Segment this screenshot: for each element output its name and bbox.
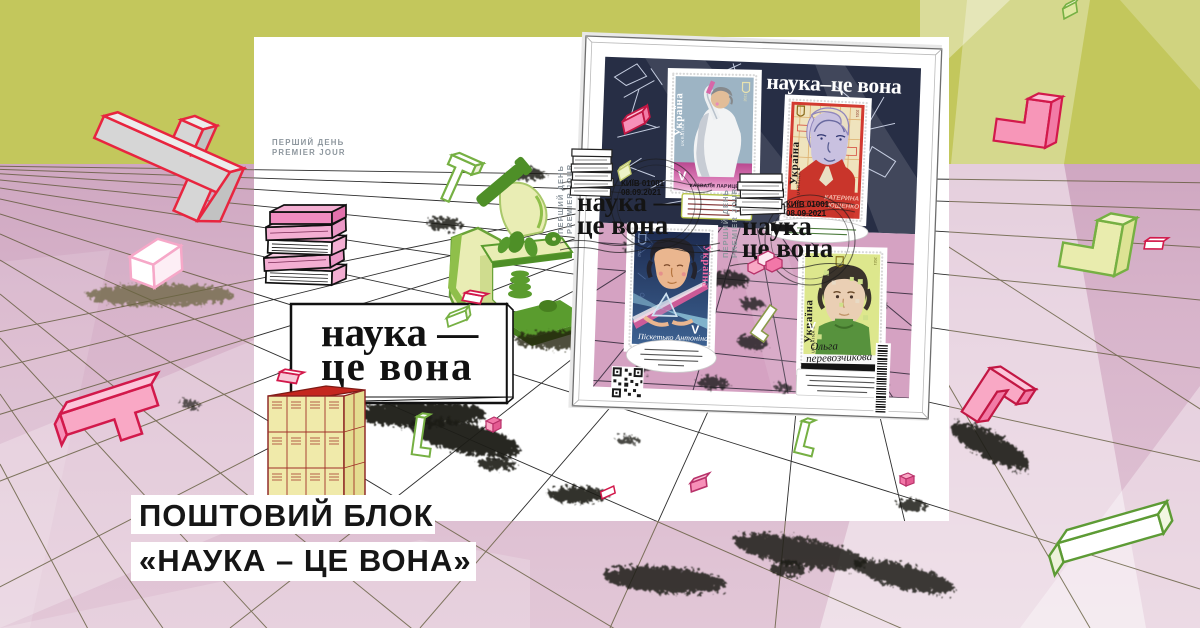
svg-text:2021: 2021 [855,110,859,118]
svg-text:наука–це вона: наука–це вона [766,70,902,99]
svg-text:це вона: це вона [577,210,669,240]
svg-text:ПЕРШИЙ ДЕНЬ: ПЕРШИЙ ДЕНЬ [556,165,565,234]
svg-text:ПОШТОВИЙ БЛОК: ПОШТОВИЙ БЛОК [139,497,434,533]
svg-text:перевозчикова: перевозчикова [806,351,873,365]
svg-text:V: V [808,319,816,333]
svg-text:UKRAINA: UKRAINA [680,123,685,146]
svg-text:UKRAINA: UKRAINA [795,172,801,196]
svg-text:PREMIER JOUR: PREMIER JOUR [272,148,346,157]
svg-text:Україна: Україна [699,245,712,289]
svg-text:«НАУКА – ЦЕ ВОНА»: «НАУКА – ЦЕ ВОНА» [139,543,472,578]
svg-text:ПЕРШИЙ ДЕНЬ: ПЕРШИЙ ДЕНЬ [272,138,344,147]
svg-text:PREMIER JOUR: PREMIER JOUR [730,188,739,258]
svg-text:ПЕРШИЙ ДЕНЬ: ПЕРШИЙ ДЕНЬ [721,189,730,258]
svg-text:2021: 2021 [743,94,747,102]
svg-text:це вона: це вона [321,343,474,389]
svg-text:2021: 2021 [873,257,877,265]
svg-text:це вона: це вона [742,233,834,263]
